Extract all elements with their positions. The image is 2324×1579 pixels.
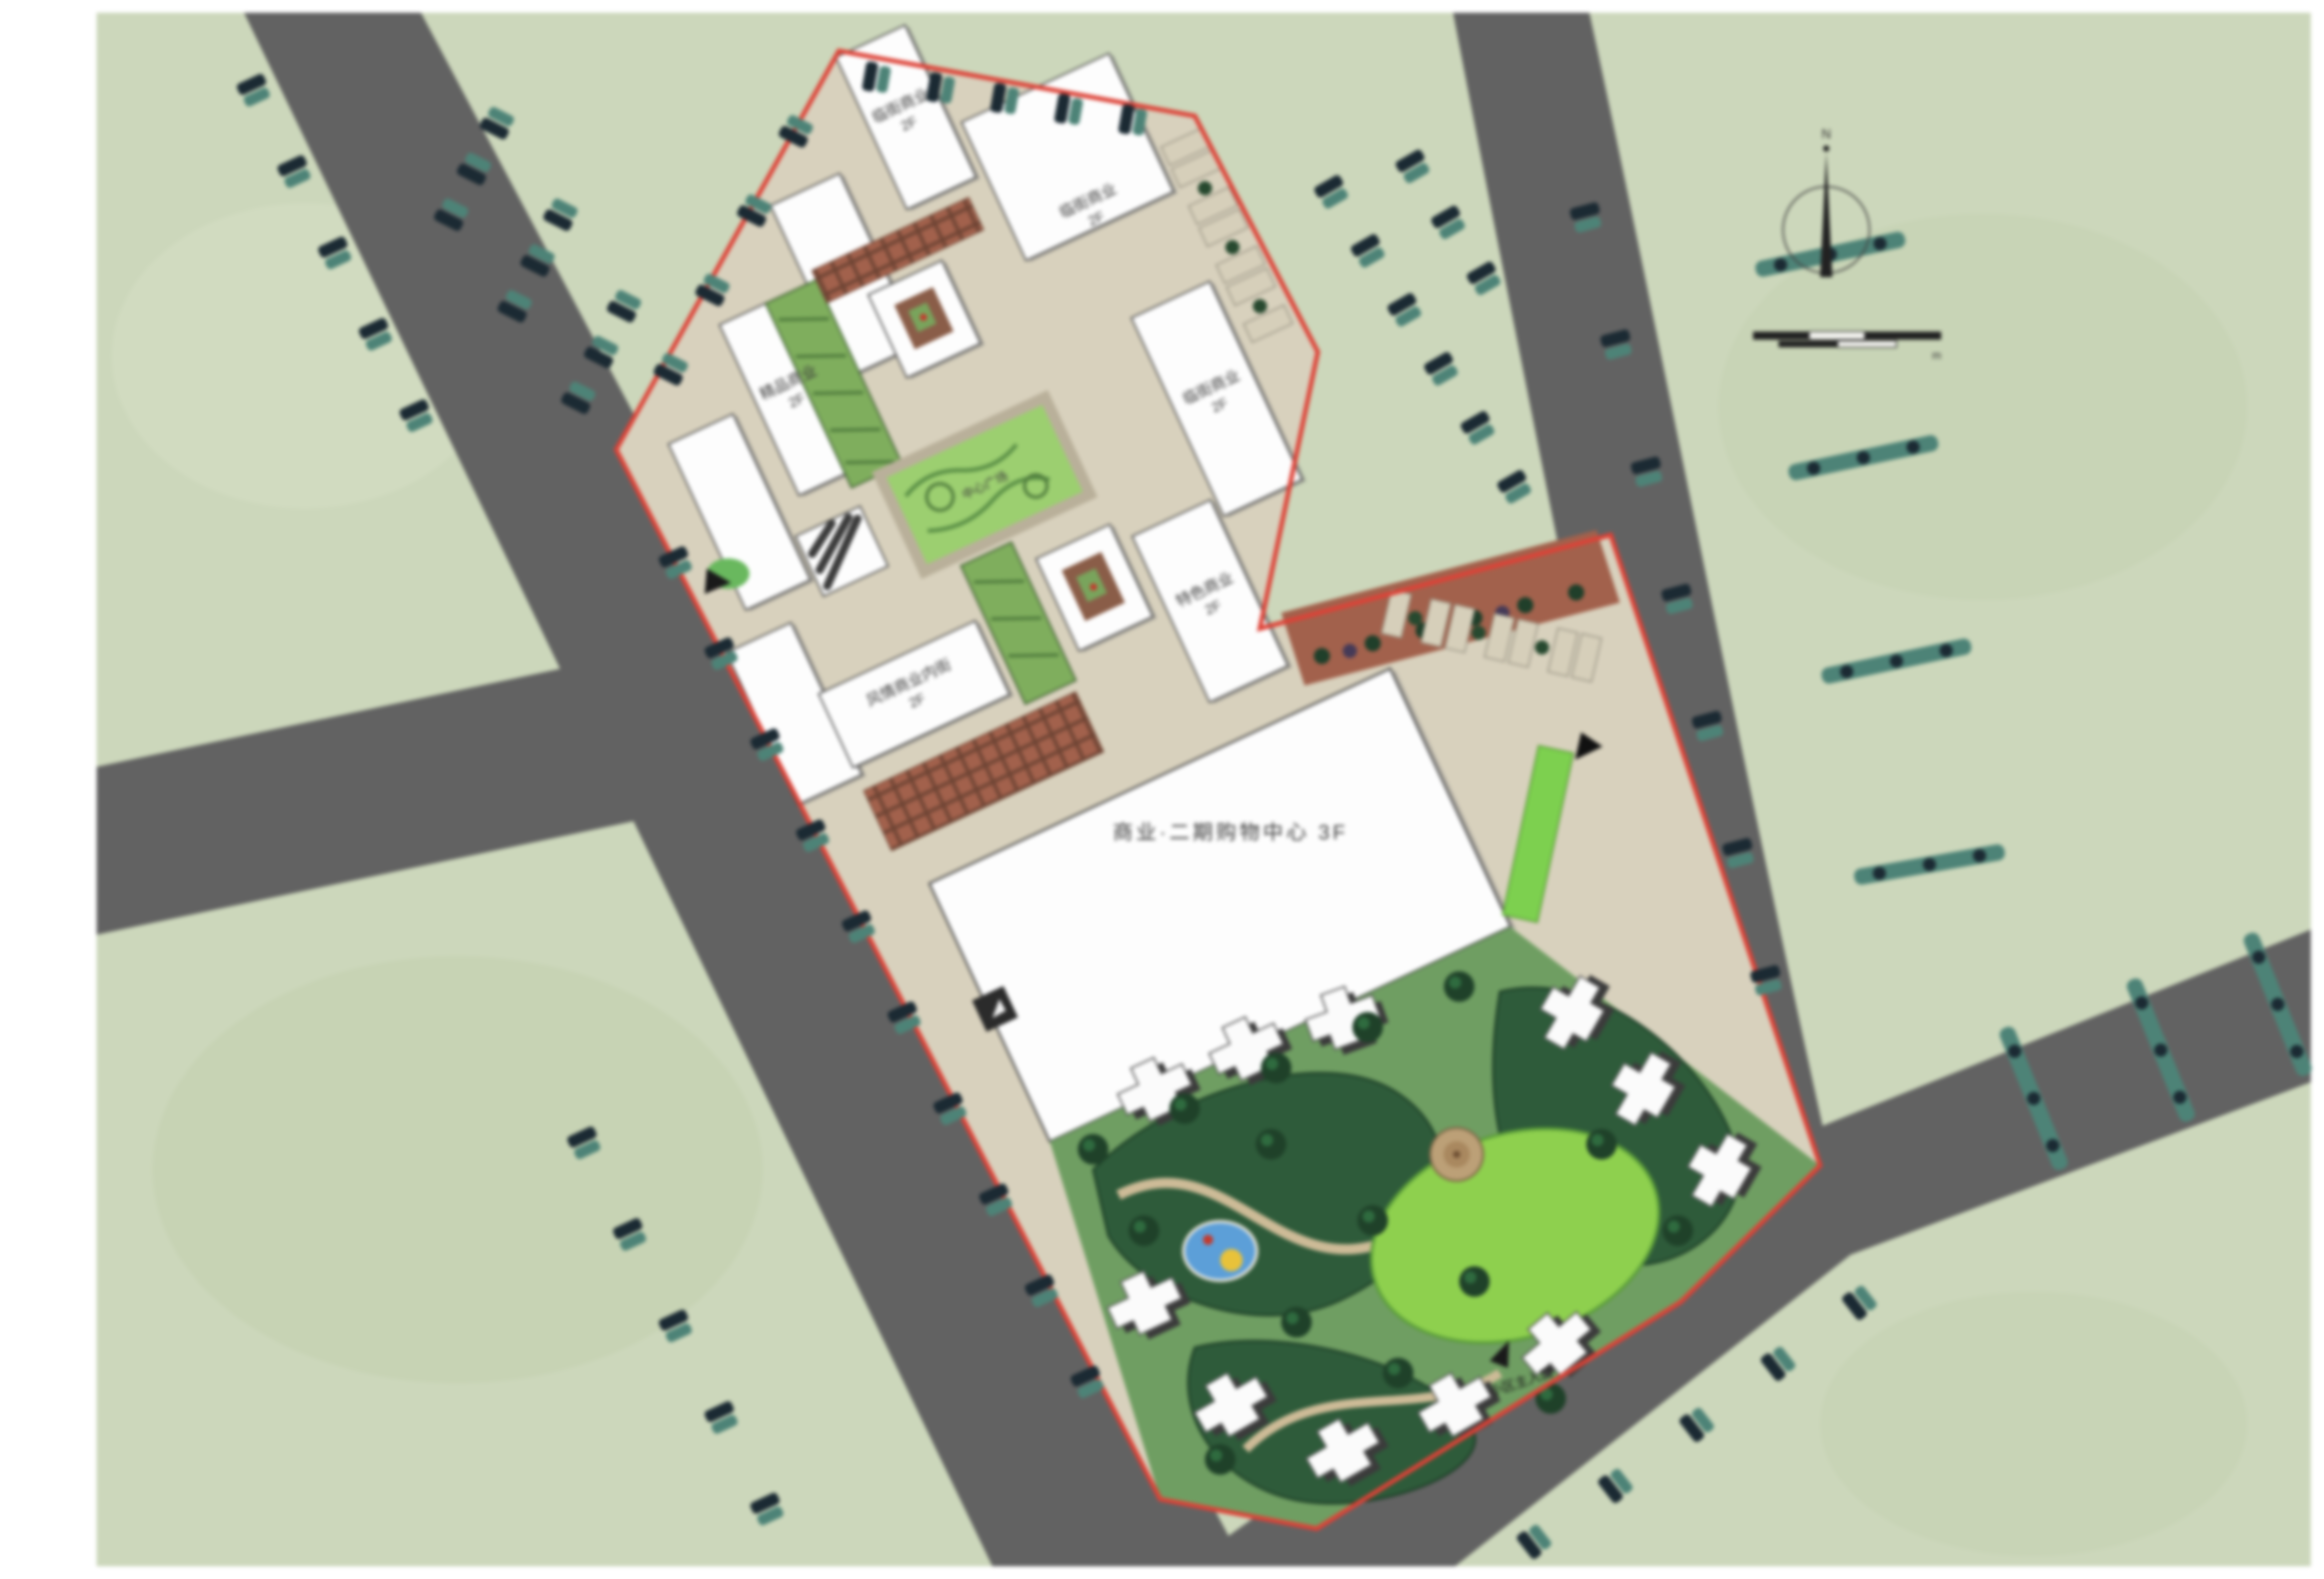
- round-plaza: [1430, 1128, 1483, 1181]
- ground-texture-blotch: [1820, 1292, 2247, 1556]
- anchor-mall-label: 商业·二期购物中心 3F: [1112, 821, 1348, 844]
- scale-unit-label: m: [1932, 349, 1941, 362]
- plan-render: 中心广场 临街商业 2F 临街商业 2F 风情商业内街 2F 特色商业 2F 临…: [0, 0, 2324, 1579]
- plan-sheet: 中心广场 临街商业 2F 临街商业 2F 风情商业内街 2F 特色商业 2F 临…: [0, 0, 2324, 1579]
- ground-texture-blotch: [1718, 214, 2247, 600]
- north-label: N: [1822, 126, 1831, 141]
- swimming-pool: [1184, 1222, 1257, 1280]
